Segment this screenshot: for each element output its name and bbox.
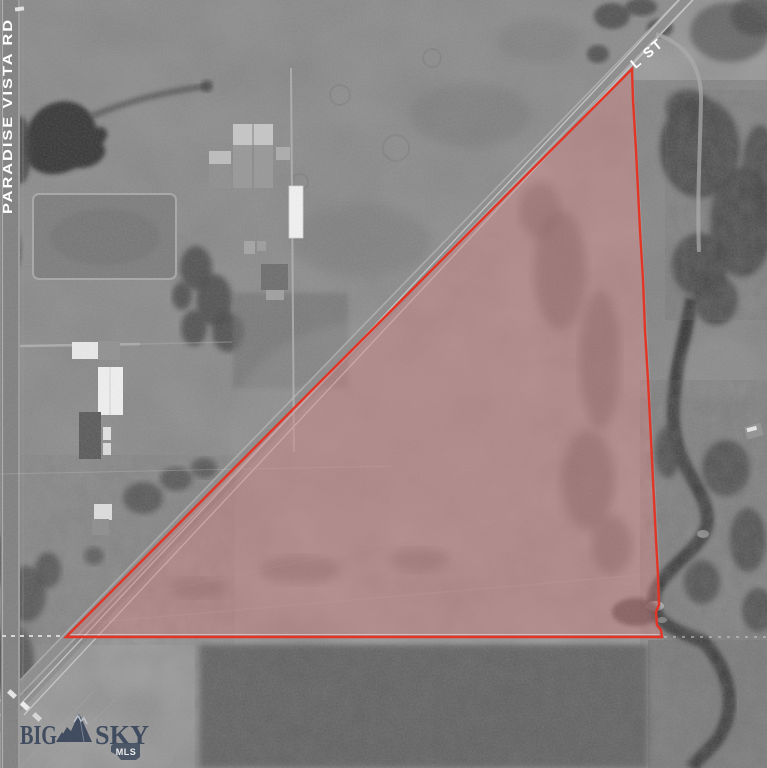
screenshot-root: PARADISE VISTA RD L ST BIG SKY MLS <box>0 0 767 768</box>
road-label-paradise-vista-rd: PARADISE VISTA RD <box>1 18 15 214</box>
logo-word-big: BIG <box>20 720 57 750</box>
mls-badge-label: MLS <box>116 747 137 757</box>
aerial-map-image: PARADISE VISTA RD L ST BIG SKY MLS <box>0 0 767 768</box>
